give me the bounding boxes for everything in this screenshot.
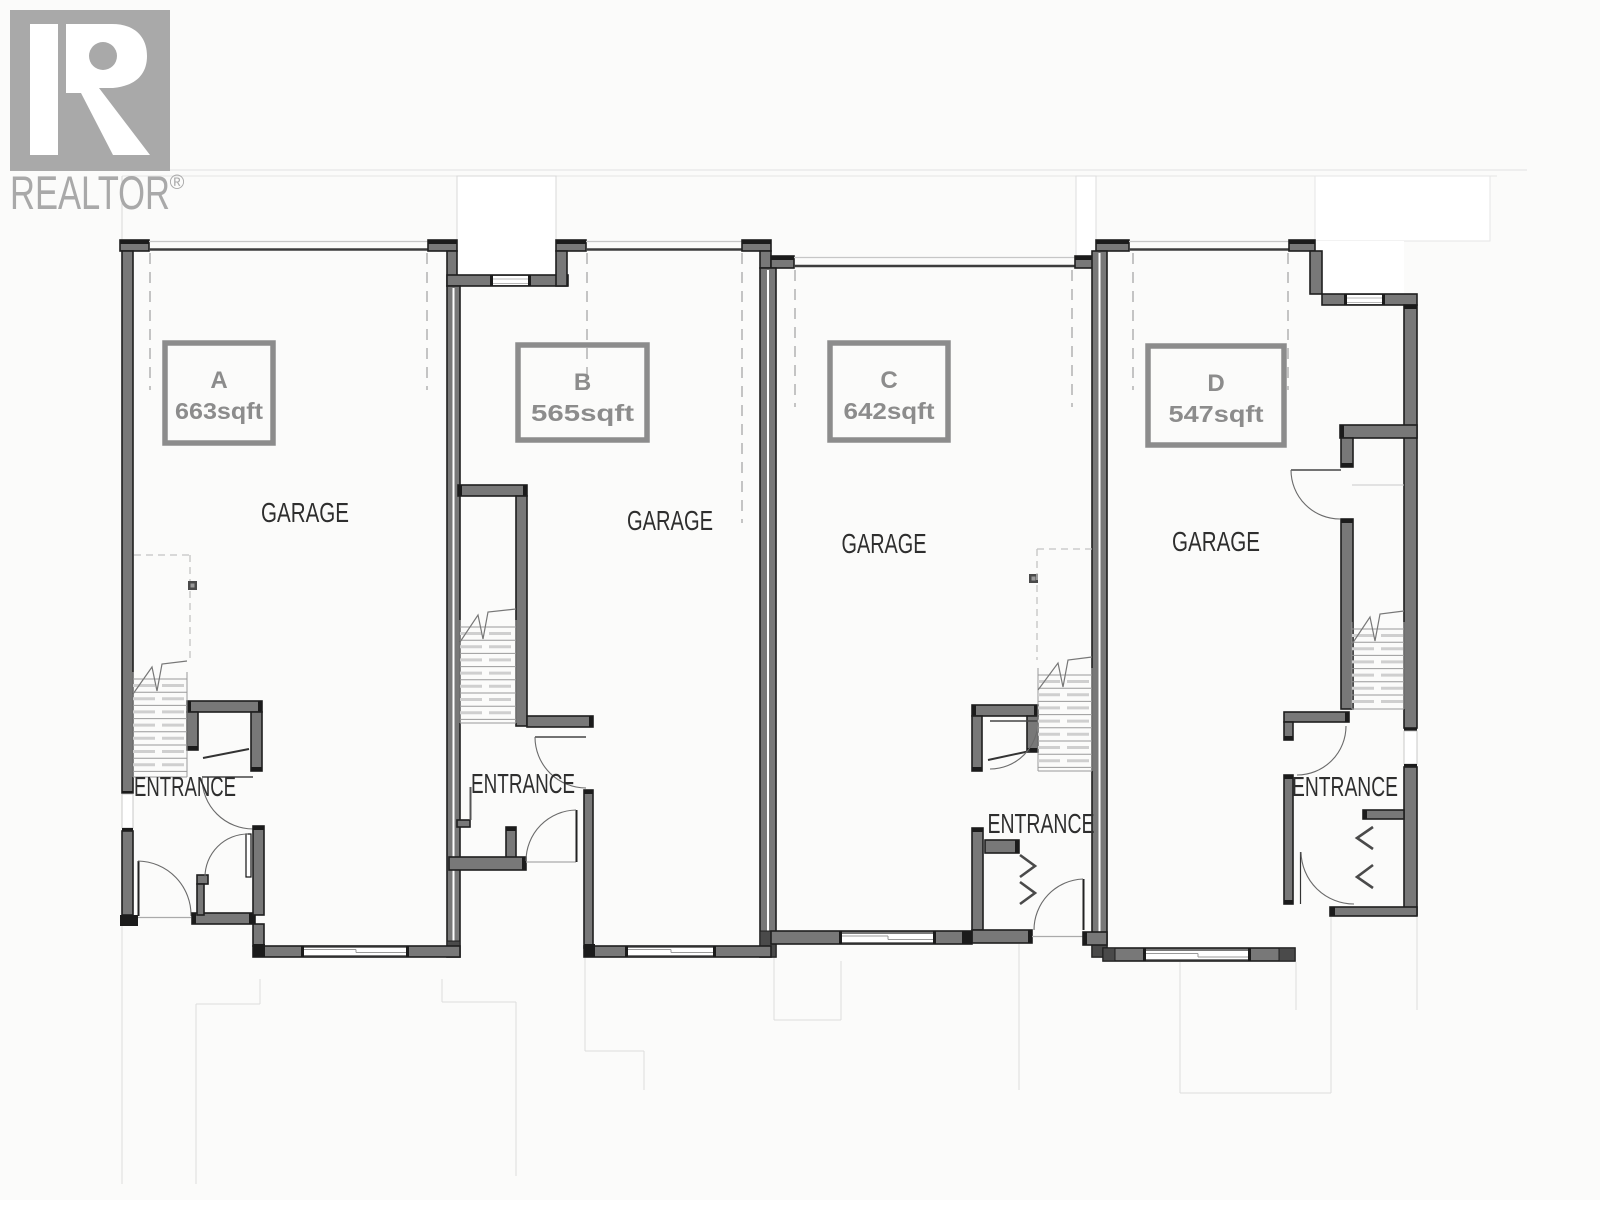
svg-text:GARAGE: GARAGE — [842, 528, 927, 559]
svg-text:547sqft: 547sqft — [1169, 401, 1264, 427]
svg-text:GARAGE: GARAGE — [261, 497, 349, 528]
svg-text:C: C — [880, 367, 897, 394]
svg-text:GARAGE: GARAGE — [1172, 526, 1260, 557]
svg-text:REALTOR: REALTOR — [10, 166, 170, 219]
svg-text:565sqft: 565sqft — [531, 400, 634, 426]
svg-text:ENTRANCE: ENTRANCE — [134, 771, 236, 802]
svg-text:®: ® — [170, 172, 185, 194]
svg-text:ENTRANCE: ENTRANCE — [1292, 771, 1398, 802]
svg-text:663sqft: 663sqft — [175, 398, 263, 424]
svg-text:ENTRANCE: ENTRANCE — [471, 768, 575, 799]
svg-text:B: B — [574, 369, 591, 396]
svg-text:D: D — [1207, 370, 1224, 397]
svg-text:GARAGE: GARAGE — [627, 505, 713, 536]
svg-text:ENTRANCE: ENTRANCE — [988, 808, 1095, 839]
svg-text:642sqft: 642sqft — [844, 398, 935, 424]
svg-text:A: A — [210, 367, 227, 394]
